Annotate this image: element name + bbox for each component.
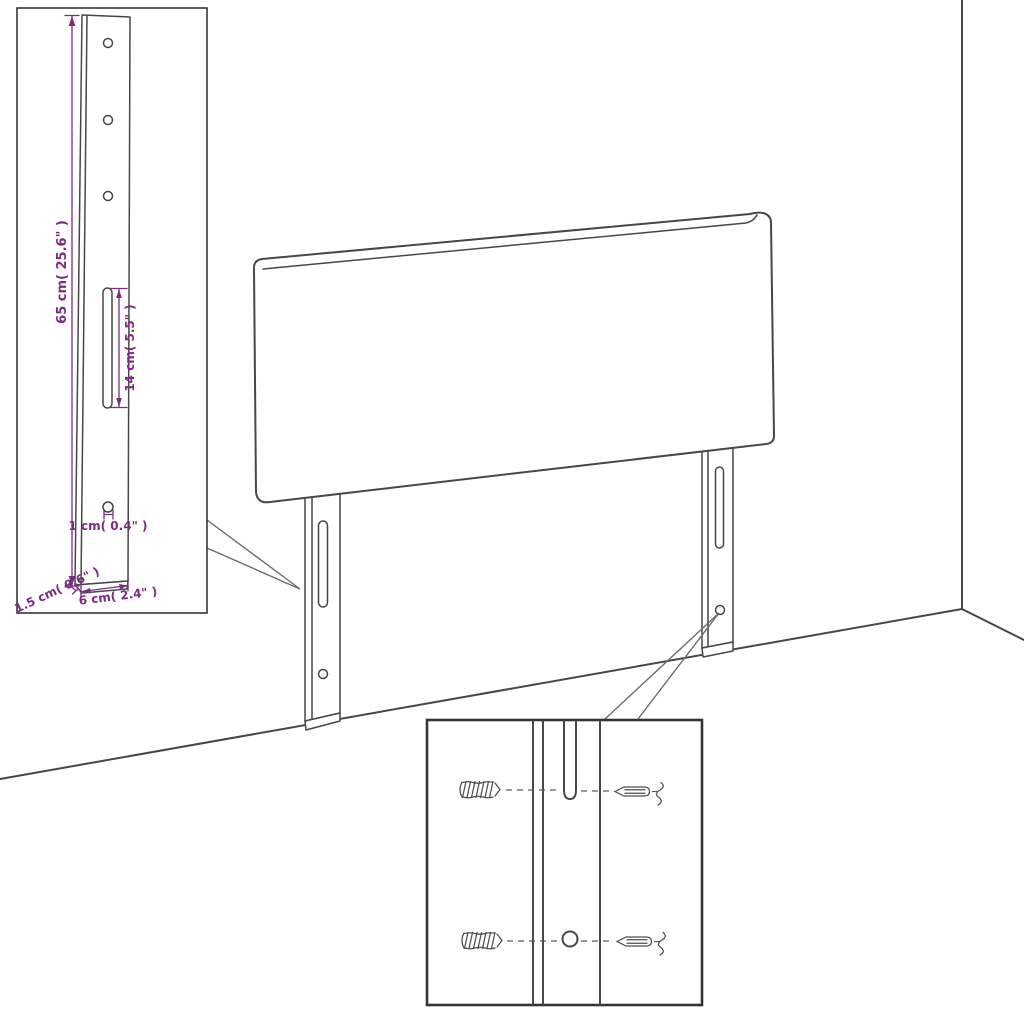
headboard-panel <box>254 213 774 503</box>
left-leg <box>305 493 340 730</box>
right-leg-hole <box>716 606 725 615</box>
right-leg-slot <box>716 467 724 548</box>
callout-line <box>638 613 719 719</box>
bracket-hole <box>104 192 113 201</box>
assembly-diagram: 65 cm( 25.6" ) 14 cm( 5.5" ) 1 cm( 0.4" … <box>0 0 1024 1024</box>
dimension-height-label: 65 cm( 25.6" ) <box>55 220 70 324</box>
detail-callout-right <box>605 613 719 719</box>
left-leg-hole <box>319 670 328 679</box>
floor-line-right <box>962 609 1024 640</box>
left-leg-slot <box>319 521 328 607</box>
leg-detail-box: 65 cm( 25.6" ) 14 cm( 5.5" ) 1 cm( 0.4" … <box>12 8 207 616</box>
bracket-hole <box>104 39 113 48</box>
callout-line <box>605 613 719 719</box>
bracket-hole <box>104 116 113 125</box>
dimension-slot-label: 14 cm( 5.5" ) <box>123 304 137 391</box>
dimension-hole-label: 1 cm( 0.4" ) <box>69 519 148 533</box>
bracket-slot <box>103 288 112 408</box>
detail-callout-left <box>207 520 300 589</box>
mounting-detail-box <box>427 720 702 1005</box>
headboard <box>254 213 774 503</box>
assembly-diagram-page: 65 cm( 25.6" ) 14 cm( 5.5" ) 1 cm( 0.4" … <box>0 0 1024 1024</box>
